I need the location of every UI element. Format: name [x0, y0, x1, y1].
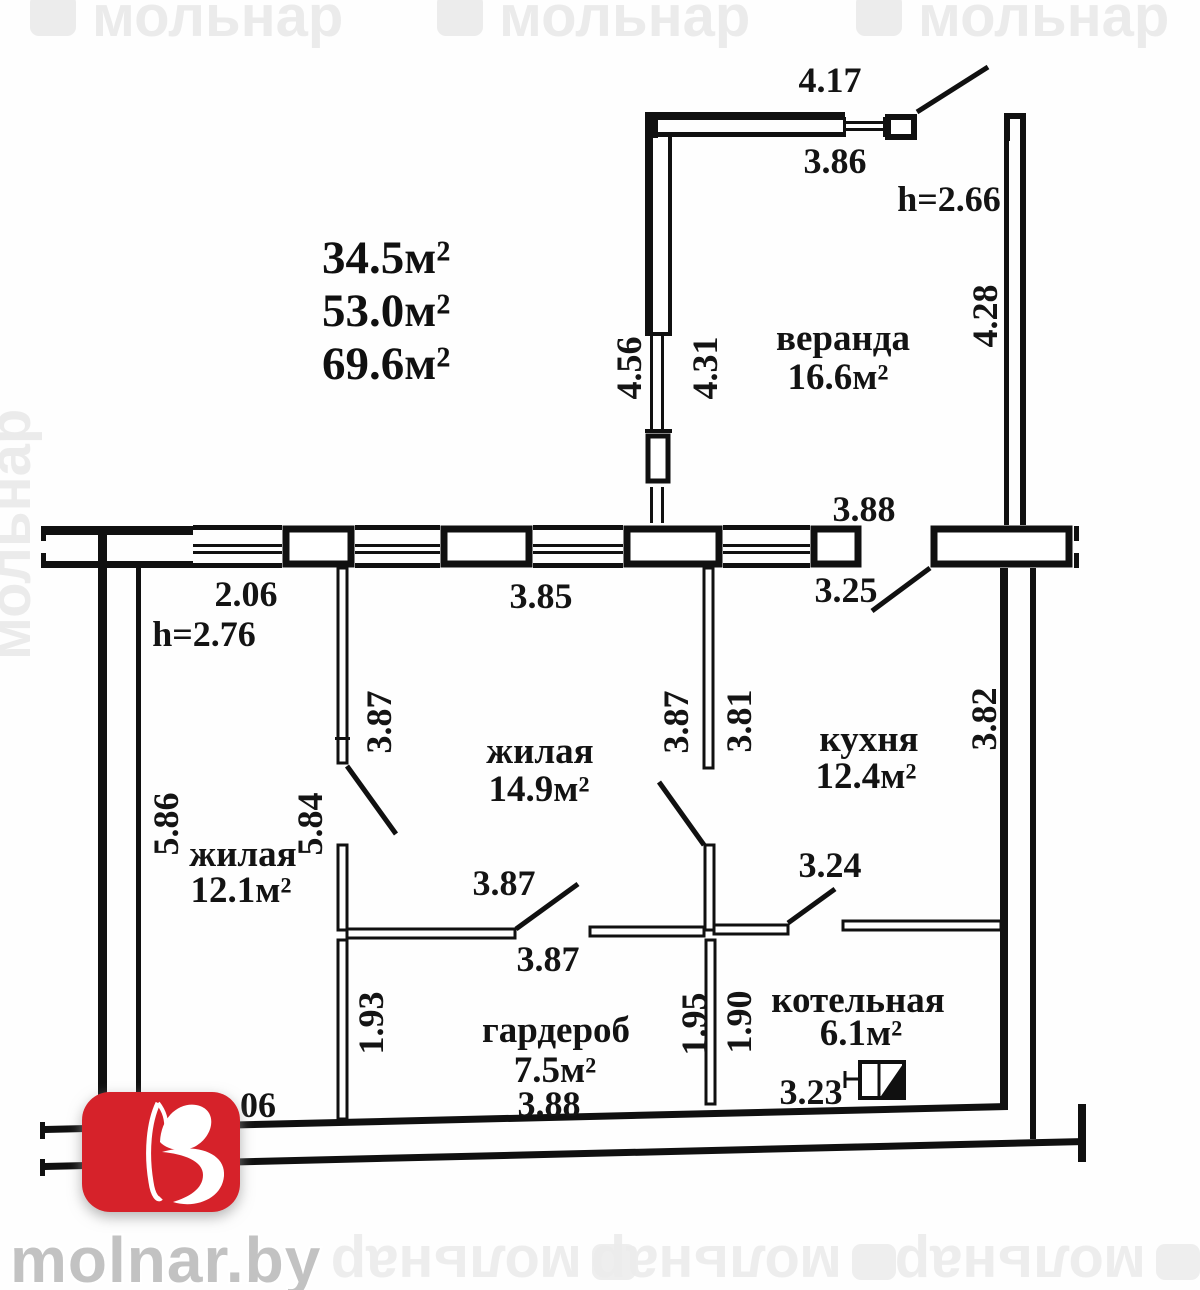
room-name-living-main: жилая: [486, 731, 593, 772]
wall-pier: [444, 529, 529, 564]
room-name-kitchen: кухня: [819, 719, 918, 760]
room-area-living-second: 12.1м²: [190, 870, 291, 911]
wall-pier: [814, 529, 858, 564]
watermark-text: мольнар: [499, 0, 750, 49]
dim-stub-width: 2.06: [215, 574, 278, 614]
watermark-text: мольнар: [92, 0, 343, 49]
dim-boiler-bottom-width: 3.23: [780, 1072, 843, 1112]
dim-veranda-left-inner: 4.31: [685, 337, 725, 400]
boiler-icon: [844, 1062, 904, 1098]
molnar-logo: [82, 1092, 240, 1212]
dim-living-main-width: 3.85: [510, 576, 573, 616]
floor-plan-canvas: мольнар мольнар мольнар мольнар мольнар …: [0, 0, 1200, 1290]
dim-kitchen-east-depth: 3.82: [964, 688, 1004, 751]
room-labels: жилая 14.9м² кухня 12.4м² жилая 12.1м² г…: [189, 719, 945, 1091]
dim-veranda-left-outer: 4.56: [609, 337, 649, 400]
height-main: h=2.76: [152, 614, 256, 654]
dim-kitchen-west-depth: 3.87: [656, 691, 696, 754]
wall-pier: [627, 529, 719, 564]
veranda-door-post: [888, 117, 914, 137]
dim-veranda-top-inner: 3.86: [804, 141, 867, 181]
floor-plan-page: мольнар мольнар мольнар мольнар мольнар …: [0, 0, 1200, 1290]
height-veranda: h=2.66: [897, 179, 1001, 219]
boiler-area-door-leaf: [788, 889, 835, 923]
area-summary: 34.5м² 53.0м² 69.6м²: [322, 232, 450, 390]
room-area-veranda: 16.6м²: [787, 357, 888, 398]
kitchen-door-leaf: [659, 782, 704, 845]
watermark-text: мольнар: [0, 409, 43, 660]
dim-veranda-top-outer: 4.17: [799, 60, 862, 100]
watermark-logo-icon: [30, 0, 76, 36]
veranda-left-pier: [648, 436, 668, 481]
wall-pier: [934, 529, 1069, 564]
watermark-logo-icon: [437, 0, 483, 36]
watermark-text: мольнар: [591, 1233, 842, 1290]
dim-partial-bottom-left: 06: [240, 1085, 276, 1125]
watermark-text: мольнар: [331, 1233, 582, 1290]
area-summary-line-3: 69.6м²: [322, 338, 450, 390]
dim-living2-depth-left: 5.86: [146, 793, 186, 856]
wall-pier: [286, 529, 351, 564]
watermark-text: мольнар: [918, 0, 1169, 49]
watermark-text: мольнар: [895, 1233, 1146, 1290]
dim-kitchen-entry-width: 3.25: [815, 570, 878, 610]
dim-wardrobe-door-width: 3.87: [473, 863, 536, 903]
veranda-left-window-1: [650, 336, 664, 429]
room-name-veranda: веранда: [776, 318, 910, 359]
window: [723, 525, 810, 568]
watermark-row-top: мольнар мольнар мольнар: [30, 0, 1169, 49]
entry-door-leaf: [872, 568, 930, 611]
dim-boiler-door-width: 3.24: [799, 845, 862, 885]
veranda-door-leader-line: [917, 67, 988, 112]
watermark-logo-icon: [1156, 1244, 1200, 1280]
dim-wardrobe-height-right: 1.95: [674, 993, 714, 1056]
room-area-living-main: 14.9м²: [488, 769, 589, 810]
living-rooms-door-leaf: [347, 766, 396, 834]
dim-kitchen-top-width: 3.88: [833, 489, 896, 529]
window: [355, 525, 440, 568]
brand-site-text: molnar.by: [10, 1224, 321, 1290]
veranda-left-window-2: [650, 487, 664, 523]
dim-wardrobe-height-left: 1.93: [351, 992, 391, 1055]
room-area-wardrobe: 7.5м²: [514, 1050, 597, 1091]
area-summary-line-2: 53.0м²: [322, 285, 450, 337]
room-area-boiler: 6.1м²: [820, 1013, 903, 1054]
dim-boiler-height-left: 1.90: [719, 991, 759, 1054]
watermark-logo-icon: [856, 0, 902, 36]
watermark-left-vertical: мольнар: [0, 409, 43, 660]
watermark-logo-icon: [852, 1244, 896, 1280]
dim-wardrobe-top-width: 3.87: [517, 939, 580, 979]
watermark-row-bottom: мольнар мольнар мольнар: [331, 1233, 1200, 1290]
window: [193, 525, 282, 568]
dim-living-main-depth: 3.87: [359, 691, 399, 754]
room-area-kitchen: 12.4м²: [815, 756, 916, 797]
dim-veranda-right: 4.28: [965, 285, 1005, 348]
main-left-wall: [98, 535, 141, 1127]
room-name-wardrobe: гардероб: [482, 1010, 630, 1051]
room-name-living-second: жилая: [189, 834, 296, 875]
dim-kitchen-depth: 3.81: [719, 690, 759, 753]
main-right-wall: [1000, 568, 1036, 1139]
veranda-top-window: [843, 117, 886, 137]
window: [533, 525, 623, 568]
area-summary-line-1: 34.5м²: [322, 232, 450, 284]
